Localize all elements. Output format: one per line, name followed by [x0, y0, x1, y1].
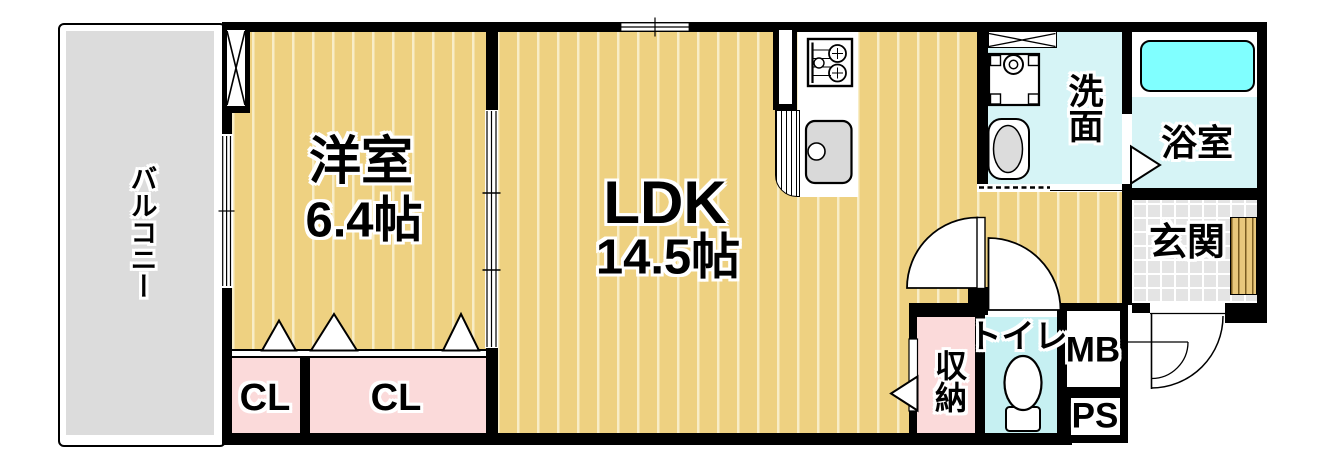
wall-storage-top: [909, 303, 985, 317]
closet2-label: CL: [371, 379, 422, 417]
toilet-label: トイレ: [969, 320, 1068, 353]
wall-storage-left: [909, 317, 917, 435]
kitchen-counter: [798, 30, 858, 197]
wall-entrance-corner: [1225, 303, 1267, 323]
wall-below-bath: [1122, 188, 1267, 200]
balcony-label: バルコニー: [128, 165, 155, 300]
ldk-size: 14.5帖: [596, 234, 740, 283]
entrance-door-frame: [1127, 342, 1189, 388]
wall-closet-divider: [300, 349, 310, 445]
washroom-doorway-band: [977, 184, 1122, 192]
hallway-floor: [977, 192, 1122, 305]
entrance-door-opening: [1150, 303, 1225, 313]
kitchen-counter-end: [775, 110, 800, 197]
western-room-label: 洋室: [309, 136, 413, 188]
meter-box-label: MB: [1066, 333, 1120, 368]
western-room-size: 6.4帖: [305, 197, 422, 246]
wall-hall-entrance: [1122, 200, 1132, 305]
partition-sliding-door: [485, 110, 498, 348]
washroom-label: 洗面: [1066, 73, 1101, 143]
closet-front-track: [232, 349, 486, 358]
entrance-step: [1230, 217, 1257, 295]
storage-label: 収納: [933, 349, 965, 413]
pillar-x-box: [227, 30, 245, 106]
bathtub: [1140, 40, 1255, 92]
kitchen-stub-recess: [779, 30, 792, 104]
ldk-label: LDK: [603, 173, 726, 233]
wall-bottom: [222, 433, 1072, 445]
bath-door-opening: [1122, 114, 1132, 184]
wall-top: [222, 22, 1267, 32]
wall-partition-upper: [486, 22, 498, 111]
wall-partition-lower: [486, 347, 498, 445]
pipe-space-label: PS: [1072, 399, 1119, 434]
entrance-label: 玄関: [1149, 224, 1225, 262]
balcony-window: [221, 134, 233, 288]
bathroom-label: 浴室: [1161, 125, 1233, 161]
entrance-door-arc-inner: [1152, 342, 1189, 379]
wall-right: [1257, 22, 1267, 313]
wall-washroom-left: [977, 22, 988, 185]
closet1-label: CL: [240, 379, 291, 417]
washroom-window: [988, 31, 1057, 48]
floor-plan: バルコニー 洋室 6.4帖 LDK 14.5帖 CL CL 洗面 浴室 玄関 収…: [0, 0, 1330, 458]
entrance-door-arc-outer: [1151, 316, 1223, 388]
